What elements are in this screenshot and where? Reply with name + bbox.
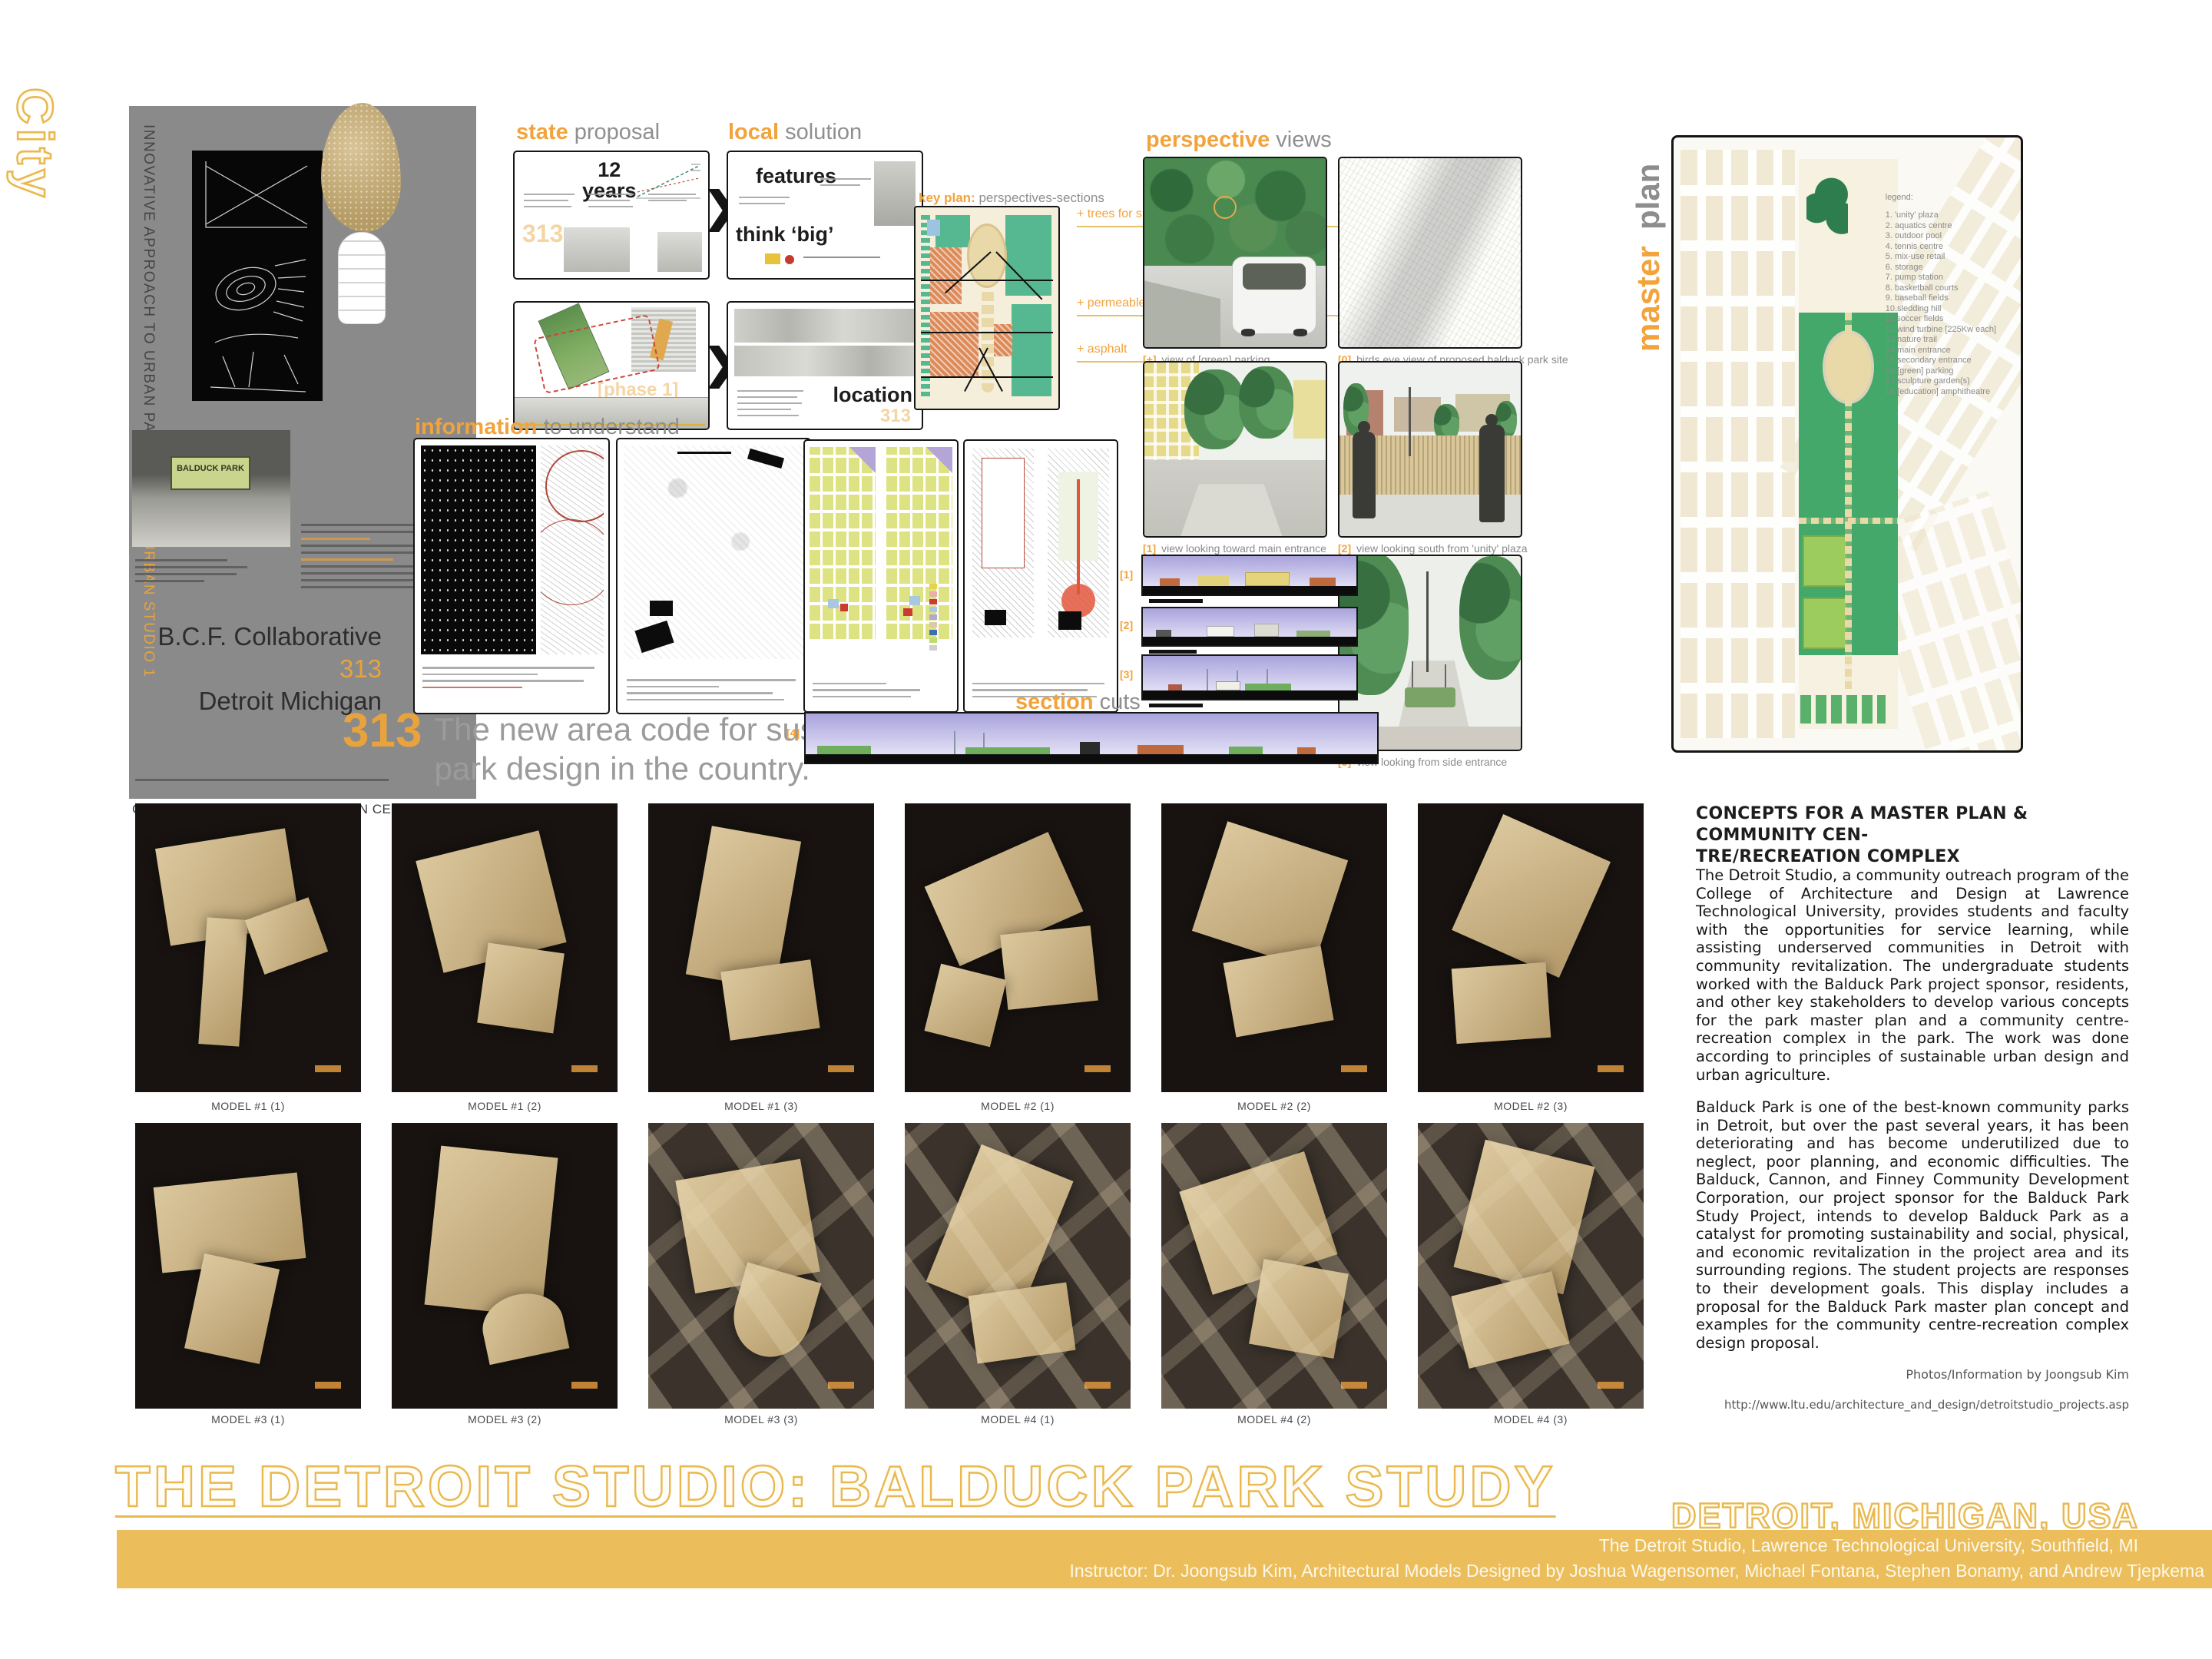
concepts-paragraph-1: The Detroit Studio, a community outreach… [1696, 866, 2129, 1084]
think-big-label: think ‘big’ [736, 223, 834, 247]
legend-item: 18.[education] amphitheatre [1886, 387, 2014, 398]
figure-ground-panel [413, 438, 610, 714]
poster-title: THE DETROIT STUDIO: BALDUCK PARK STUDY [115, 1453, 1556, 1519]
state-proposal-header: state proposal [516, 120, 660, 145]
legend-item: 14.main entrance [1886, 346, 2014, 356]
model-photo [1161, 803, 1387, 1092]
legend-item: 5. mix-use retail [1886, 252, 2014, 263]
photo-strip [734, 309, 916, 343]
walking-diagram-panel [616, 438, 811, 714]
legend-item: 3. outdoor pool [1886, 231, 2014, 242]
car-illustration [1232, 257, 1317, 333]
perspective-image-main-entrance [1143, 361, 1327, 538]
legend-item: 1. 'unity' plaza [1886, 210, 2014, 221]
local-panel-1: features think ‘big’ [727, 151, 923, 280]
legend-item: 6. storage [1886, 263, 2014, 273]
scale-bar [1149, 650, 1197, 654]
location-label: location [833, 383, 912, 407]
street-grid [1681, 150, 1795, 738]
master-plan-map: legend: 1. 'unity' plaza 2. aquatics cen… [1671, 135, 2023, 753]
key-plan-header: key plan: perspectives-sections [919, 190, 1104, 206]
firm-number: 313 [339, 654, 382, 683]
caption-unity-plaza: [2]view looking south from 'unity' plaza [1338, 542, 1528, 555]
section-strip-3 [1141, 654, 1358, 700]
photo-thumbnail [874, 161, 916, 226]
model-photo [1418, 1123, 1644, 1409]
model-photo [392, 803, 618, 1092]
information-header: information to understand [415, 415, 680, 440]
photo-strip [734, 346, 916, 376]
model-label: MODEL #4 (3) [1418, 1413, 1644, 1426]
concepts-heading: CONCEPTS FOR A MASTER PLAN & COMMUNITY C… [1696, 803, 2129, 868]
project-url: http://www.ltu.edu/architecture_and_desi… [1696, 1398, 2129, 1412]
model-label: MODEL #1 (2) [392, 1100, 618, 1112]
model-photo [135, 1123, 361, 1409]
legend-title: legend: [1886, 193, 2014, 204]
figure-ground-map [421, 445, 536, 654]
scale-bar [1149, 704, 1203, 707]
photo-credit: Photos/Information by Joongsub Kim [1696, 1367, 2129, 1382]
footer-credits: Instructor: Dr. Joongsub Kim, Architectu… [1070, 1561, 2204, 1581]
years-top: 12 [598, 158, 621, 181]
section-strip-1 [1141, 555, 1358, 596]
leader-ring [1214, 196, 1237, 219]
landuse-map [886, 447, 952, 639]
legend-item: 12.wind turbine [225Kw each] [1886, 325, 2014, 336]
local-panel-2: location 313 [727, 301, 923, 430]
legend-item: 2. aquatics centre [1886, 221, 2014, 232]
lightbulb-icon [338, 232, 386, 324]
radius-diagram [541, 445, 604, 654]
perspective-image-unity-plaza [1338, 361, 1522, 538]
model-photo [1161, 1123, 1387, 1409]
park-sign: BALDUCK PARK [171, 456, 250, 490]
person-silhouette [1353, 432, 1376, 518]
section-label-4: [4] [786, 727, 800, 739]
legend-item: 15.secondary entrance [1886, 356, 2014, 366]
footer-bar: The Detroit Studio, Lawrence Technologic… [117, 1530, 2212, 1588]
master-plan-vertical-label: master plan [1630, 129, 1667, 352]
area-code-number: 313 [343, 710, 422, 753]
state-panel-1: 12 years 313 [513, 151, 710, 280]
section-label-2: [2] [1120, 619, 1133, 631]
model-label: MODEL #2 (3) [1418, 1100, 1644, 1112]
legend-item: 8. basketball courts [1886, 283, 2014, 294]
balduck-park-photo: BALDUCK PARK [132, 430, 290, 547]
model-label: MODEL #2 (2) [1161, 1100, 1387, 1112]
legend-item: 11.soccer fields [1886, 314, 2014, 325]
model-label: MODEL #1 (1) [135, 1100, 361, 1112]
map-legend-chips [929, 584, 937, 651]
footer-affiliation: The Detroit Studio, Lawrence Technologic… [1599, 1535, 2138, 1556]
photo-thumbnail [657, 232, 702, 272]
scale-bar [1149, 599, 1203, 603]
concept-sketch-image [192, 151, 323, 401]
placeholder-text-lines [135, 555, 250, 587]
legend-item: 13.nature trail [1886, 335, 2014, 346]
section-label-1: [1] [1120, 568, 1133, 581]
head-illustration [321, 103, 401, 232]
section-line-2 [921, 332, 1052, 333]
placeholder-lines [588, 189, 637, 212]
model-label: MODEL #4 (2) [1161, 1413, 1387, 1426]
section-strip-2 [1141, 607, 1358, 647]
head-and-bulb-illustration [315, 103, 410, 356]
person-silhouette [1479, 425, 1505, 522]
landuse-maps-panel [803, 439, 959, 713]
perspective-views-header: perspective views [1146, 127, 1332, 153]
placeholder-lines [648, 189, 699, 206]
placeholder-lines [739, 192, 793, 209]
model-photo [392, 1123, 618, 1409]
plan-strip [1048, 449, 1109, 637]
model-label: MODEL #1 (3) [648, 1100, 874, 1112]
placeholder-caption [627, 674, 799, 705]
model-photo [905, 803, 1131, 1092]
model-photo [135, 803, 361, 1092]
city-vertical-label: City [6, 88, 65, 202]
photo-thumbnail [564, 227, 630, 272]
section-line-3 [921, 376, 1052, 378]
key-plan-map [914, 206, 1060, 410]
legend-item: 17.sculpture garden(s) [1886, 376, 2014, 387]
map-legend: legend: 1. 'unity' plaza 2. aquatics cen… [1886, 193, 2014, 398]
model-label: MODEL #3 (1) [135, 1413, 361, 1426]
concepts-paragraph-2: Balduck Park is one of the best-known co… [1696, 1098, 2129, 1352]
poster-board: City INNOVATIVE APPROACH TO URBAN PARK D… [0, 0, 2212, 1659]
placeholder-lines [524, 189, 578, 212]
legend-item: 7. pump station [1886, 273, 2014, 283]
model-photo [1418, 803, 1644, 1092]
local-solution-header: local solution [728, 120, 862, 145]
model-photo [905, 1123, 1131, 1409]
model-label: MODEL #3 (2) [392, 1413, 618, 1426]
perspective-image-birds-eye [1338, 157, 1522, 349]
placeholder-caption [813, 678, 928, 703]
model-label: MODEL #4 (1) [905, 1413, 1131, 1426]
firm-name: B.C.F. Collaborative [157, 622, 382, 651]
perspective-image-green-parking [1143, 157, 1327, 349]
model-photo [648, 1123, 874, 1409]
caption-main-entrance: [1]view looking toward main entrance [1143, 542, 1326, 555]
legend-item: 4. tennis centre [1886, 242, 2014, 253]
section-strip-4 [804, 712, 1379, 764]
section-label-3: [3] [1120, 668, 1133, 680]
model-label: MODEL #2 (1) [905, 1100, 1131, 1112]
placeholder-caption [422, 662, 598, 693]
park-area [1799, 159, 1898, 729]
sketch-map [624, 445, 803, 659]
leader-asphalt: + asphalt [1077, 343, 1127, 356]
section-line-1 [921, 280, 1052, 281]
placeholder-lines [737, 386, 806, 421]
firm-name-block: B.C.F. Collaborative 313 Detroit Michiga… [142, 621, 382, 717]
legend-item: 9. baseball fields [1886, 293, 2014, 304]
legend-item: 16.[green] parking [1886, 366, 2014, 377]
placeholder-lines [820, 174, 874, 190]
movement-diagram-panel [963, 439, 1118, 713]
model-label: MODEL #3 (3) [648, 1413, 874, 1426]
model-photo [648, 803, 874, 1092]
legend-item: 10.sledding hill [1886, 304, 2014, 315]
plan-strip [972, 449, 1034, 637]
landuse-map [810, 447, 876, 639]
code-313-ghost: 313 [522, 220, 563, 248]
mini-diagram-dots [739, 253, 892, 270]
state-panel-2: [phase 1] [513, 301, 710, 430]
code-313-ghost: 313 [880, 406, 911, 427]
